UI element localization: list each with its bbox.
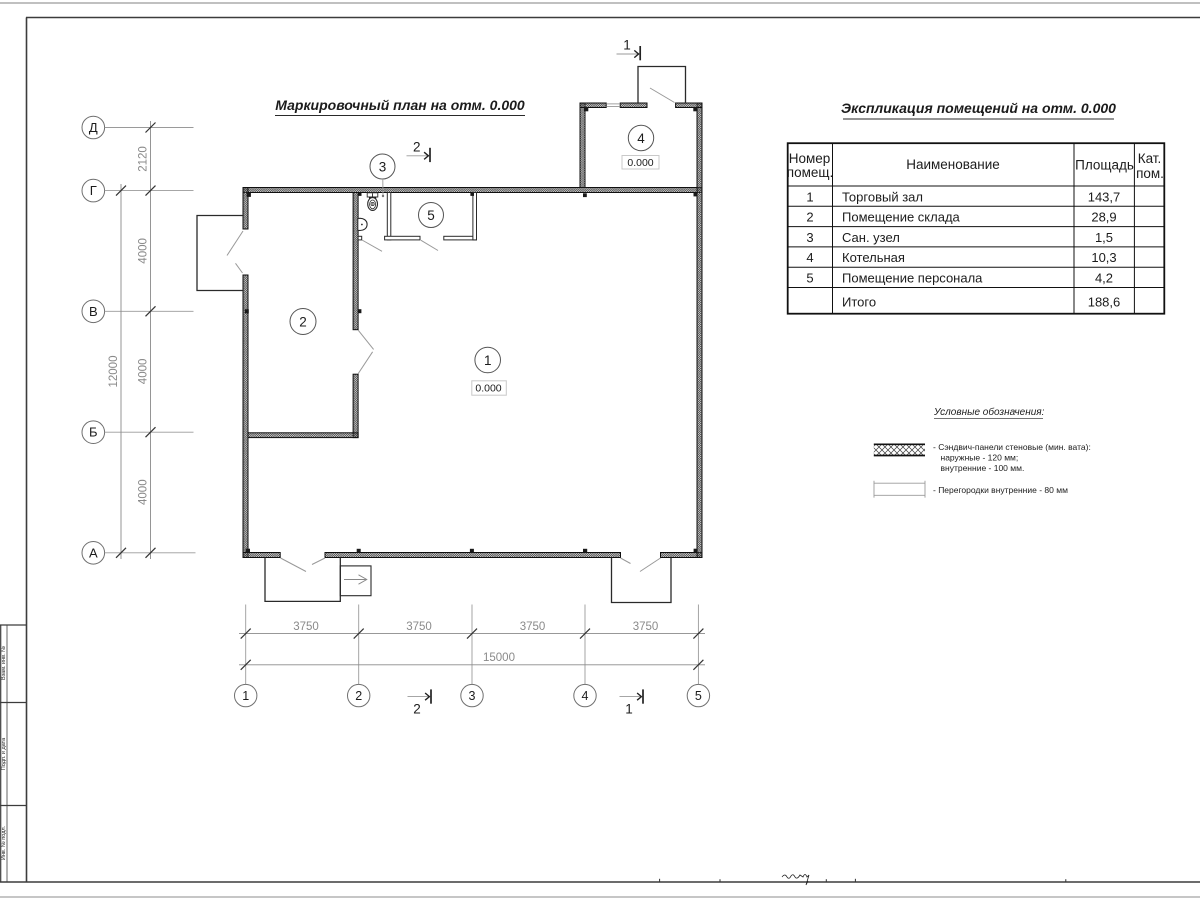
- svg-text:188,6: 188,6: [1088, 294, 1121, 309]
- svg-text:1: 1: [623, 38, 631, 53]
- svg-text:4000: 4000: [138, 359, 150, 385]
- svg-text:Котельная: Котельная: [842, 250, 905, 265]
- svg-text:1: 1: [625, 702, 633, 717]
- svg-text:внутренние - 100 мм.: внутренние - 100 мм.: [941, 463, 1025, 473]
- svg-text:3750: 3750: [520, 621, 546, 633]
- svg-text:12000: 12000: [108, 356, 120, 388]
- svg-text:1: 1: [242, 689, 249, 703]
- svg-text:- Перегородки внутренние - 80: - Перегородки внутренние - 80 мм: [933, 485, 1068, 495]
- svg-text:Экспликация помещений на отм.: Экспликация помещений на отм. 0.000: [841, 100, 1116, 116]
- svg-text:1,5: 1,5: [1095, 230, 1113, 245]
- svg-text:2: 2: [413, 139, 421, 154]
- svg-text:Помещение персонала: Помещение персонала: [842, 271, 983, 286]
- svg-text:Номер: Номер: [789, 151, 831, 166]
- svg-text:5: 5: [427, 208, 435, 223]
- svg-text:Взам. инв. №: Взам. инв. №: [1, 646, 7, 680]
- svg-text:4: 4: [806, 250, 813, 265]
- svg-text:Маркировочный план на отм. 0.0: Маркировочный план на отм. 0.000: [275, 97, 525, 113]
- svg-text:- Сэндвич-панели стеновые (мин: - Сэндвич-панели стеновые (мин. вата):: [933, 442, 1091, 452]
- svg-text:Условные обозначения:: Условные обозначения:: [933, 406, 1045, 418]
- svg-text:5: 5: [806, 271, 813, 286]
- svg-text:2: 2: [355, 689, 362, 703]
- svg-text:2120: 2120: [138, 146, 150, 172]
- svg-text:3750: 3750: [633, 621, 659, 633]
- svg-text:28,9: 28,9: [1091, 210, 1116, 225]
- svg-text:Г: Г: [90, 183, 97, 198]
- svg-text:Помещение склада: Помещение склада: [842, 210, 961, 225]
- svg-text:4000: 4000: [138, 479, 150, 505]
- svg-text:пом.: пом.: [1136, 166, 1164, 181]
- svg-text:15000: 15000: [483, 652, 515, 664]
- svg-text:1: 1: [484, 353, 492, 368]
- svg-text:А: А: [89, 545, 98, 560]
- svg-text:3: 3: [379, 160, 387, 175]
- svg-text:Подп. и дата: Подп. и дата: [1, 737, 7, 770]
- svg-text:3: 3: [806, 230, 813, 245]
- svg-text:10,3: 10,3: [1091, 250, 1116, 265]
- svg-text:2: 2: [413, 702, 421, 717]
- svg-text:В: В: [89, 304, 98, 319]
- svg-text:Б: Б: [89, 425, 98, 440]
- svg-text:Площадь: Площадь: [1075, 157, 1134, 172]
- svg-text:Кат.: Кат.: [1138, 151, 1162, 166]
- svg-text:Наименование: Наименование: [906, 157, 1000, 172]
- svg-text:3750: 3750: [406, 621, 432, 633]
- svg-text:0.000: 0.000: [475, 383, 501, 395]
- svg-text:4000: 4000: [138, 238, 150, 264]
- svg-text:наружные - 120 мм;: наружные - 120 мм;: [941, 453, 1019, 463]
- svg-text:2: 2: [806, 210, 813, 225]
- svg-text:Д: Д: [89, 120, 98, 135]
- svg-text:Итого: Итого: [842, 294, 876, 309]
- svg-text:4: 4: [582, 689, 589, 703]
- svg-text:Торговый зал: Торговый зал: [842, 189, 923, 204]
- svg-text:Сан. узел: Сан. узел: [842, 230, 900, 245]
- svg-text:2: 2: [299, 315, 307, 330]
- svg-text:помещ.: помещ.: [787, 165, 833, 180]
- svg-text:1: 1: [806, 189, 813, 204]
- svg-text:3750: 3750: [293, 621, 319, 633]
- svg-text:5: 5: [695, 689, 702, 703]
- svg-text:0.000: 0.000: [627, 157, 653, 169]
- svg-text:143,7: 143,7: [1088, 189, 1121, 204]
- svg-text:3: 3: [469, 689, 476, 703]
- svg-text:Инв. № подл.: Инв. № подл.: [1, 825, 7, 860]
- svg-text:4: 4: [637, 131, 645, 146]
- svg-text:4,2: 4,2: [1095, 271, 1113, 286]
